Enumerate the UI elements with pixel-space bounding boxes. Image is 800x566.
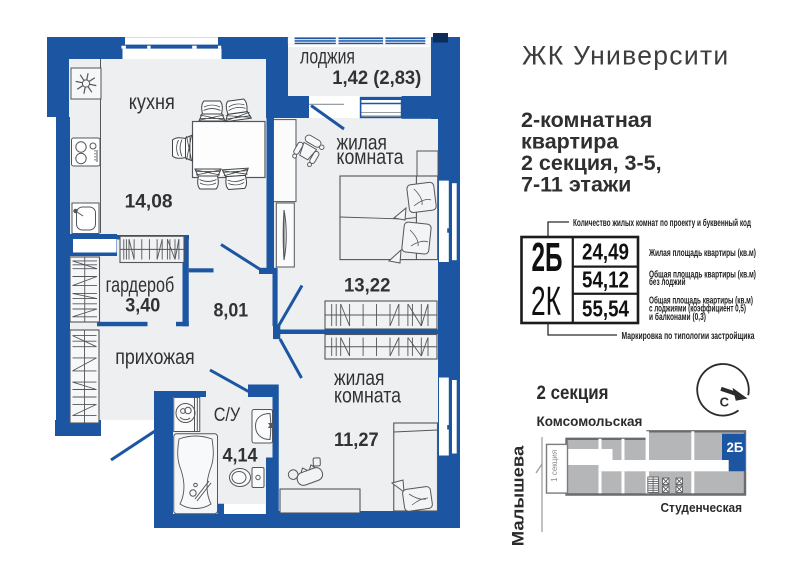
svg-text:2Б: 2Б	[532, 234, 563, 280]
svg-text:комната: комната	[337, 146, 404, 169]
svg-text:квартира: квартира	[521, 130, 619, 154]
svg-text:Маркировка по типологии застро: Маркировка по типологии застройщика	[622, 331, 755, 342]
svg-text:Студенческая: Студенческая	[661, 500, 743, 515]
svg-text:4,14: 4,14	[223, 446, 258, 467]
svg-text:2К: 2К	[531, 278, 561, 324]
svg-text:Количество жилых комнат по про: Количество жилых комнат по проекту и бук…	[573, 217, 751, 229]
svg-text:без лоджий: без лоджий	[649, 277, 686, 288]
svg-text:2-комнатная: 2-комнатная	[521, 108, 652, 132]
svg-text:прихожая: прихожая	[115, 346, 195, 369]
svg-text:лоджия: лоджия	[300, 46, 355, 69]
svg-text:2Б: 2Б	[727, 439, 744, 455]
svg-text:55,54: 55,54	[582, 296, 629, 322]
svg-text:гардероб: гардероб	[106, 274, 175, 297]
svg-text:11,27: 11,27	[334, 430, 379, 451]
svg-text:Жилая площадь квартиры (кв.м): Жилая площадь квартиры (кв.м)	[648, 248, 756, 259]
svg-text:комната: комната	[334, 384, 401, 407]
svg-text:Комсомольская: Комсомольская	[537, 414, 643, 429]
svg-text:54,12: 54,12	[582, 267, 629, 293]
svg-text:2 секция: 2 секция	[537, 383, 609, 404]
svg-text:24,49: 24,49	[582, 239, 629, 265]
svg-text:С: С	[720, 395, 730, 410]
svg-text:8,01: 8,01	[214, 301, 249, 322]
svg-text:13,22: 13,22	[344, 276, 390, 297]
svg-text:ЖК Университи: ЖК Университи	[522, 41, 730, 71]
svg-text:С/У: С/У	[214, 405, 241, 426]
svg-text:14,08: 14,08	[125, 192, 173, 213]
svg-text:7-11 этажи: 7-11 этажи	[521, 173, 631, 197]
svg-text:3,40: 3,40	[125, 296, 160, 317]
svg-text:1,42 (2,83): 1,42 (2,83)	[332, 68, 421, 89]
svg-text:1 секция: 1 секция	[550, 450, 559, 482]
svg-text:Малышева: Малышева	[509, 445, 528, 546]
svg-text:кухня: кухня	[129, 91, 175, 114]
svg-text:и балконами (0,3): и балконами (0,3)	[649, 312, 706, 323]
svg-text:2 секция, 3-5,: 2 секция, 3-5,	[521, 151, 662, 175]
